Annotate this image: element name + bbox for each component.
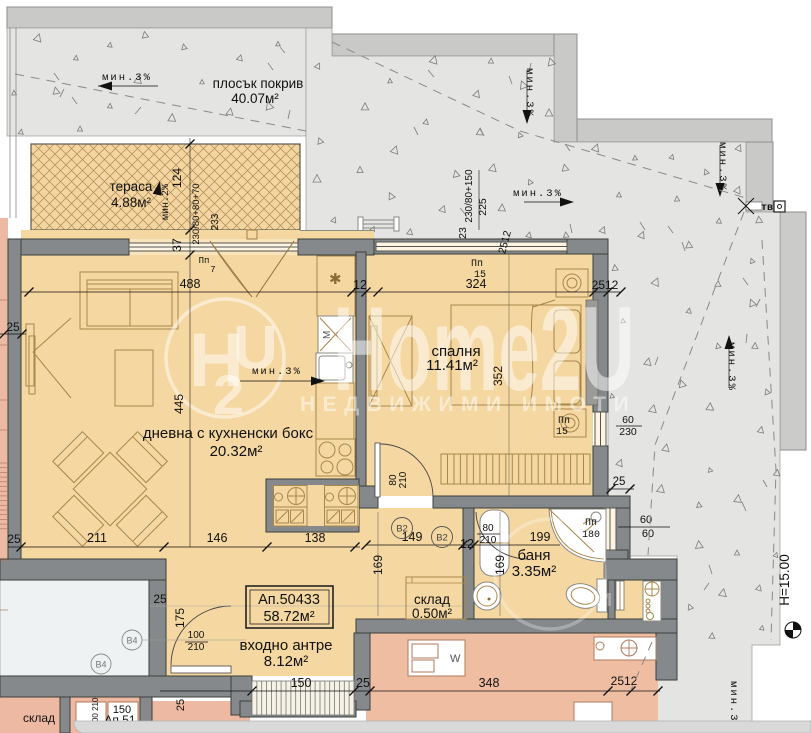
svg-text:210: 210 xyxy=(480,535,497,546)
svg-text:мин.3%: мин.3% xyxy=(725,342,737,392)
svg-text:169: 169 xyxy=(371,555,385,575)
svg-text:входно антре: входно антре xyxy=(239,637,332,654)
svg-text:Н=15.00: Н=15.00 xyxy=(777,554,792,605)
svg-text:2: 2 xyxy=(213,363,244,426)
svg-text:124: 124 xyxy=(170,168,184,188)
svg-text:2512: 2512 xyxy=(611,674,638,688)
svg-text:352: 352 xyxy=(491,366,505,386)
svg-text:11.41м²: 11.41м² xyxy=(426,357,478,374)
svg-text:B2: B2 xyxy=(436,533,448,544)
svg-text:Пп: Пп xyxy=(199,256,210,266)
svg-text:Пп: Пп xyxy=(558,416,570,427)
svg-text:склад: склад xyxy=(23,711,55,725)
svg-text:58.72м²: 58.72м² xyxy=(263,609,314,625)
svg-text:W: W xyxy=(450,653,461,665)
svg-text:225: 225 xyxy=(477,198,489,216)
svg-text:тераса: тераса xyxy=(110,179,153,194)
svg-text:плосък покрив: плосък покрив xyxy=(213,76,304,91)
svg-text:3.35м²: 3.35м² xyxy=(512,563,557,580)
svg-text:ти: ти xyxy=(586,585,613,612)
svg-text:M: M xyxy=(322,331,333,339)
svg-text:25: 25 xyxy=(356,676,370,690)
svg-text:2512: 2512 xyxy=(592,278,619,292)
svg-text:138: 138 xyxy=(305,531,326,545)
svg-text:211: 211 xyxy=(87,531,107,545)
svg-text:мин.3%: мин.3% xyxy=(513,188,563,200)
svg-text:25: 25 xyxy=(7,532,21,546)
svg-text:60: 60 xyxy=(622,414,634,426)
svg-text:233: 233 xyxy=(210,213,221,230)
svg-text:склад: склад xyxy=(414,592,450,607)
svg-text:25: 25 xyxy=(153,592,167,606)
svg-text:дневна с кухненски бокс: дневна с кухненски бокс xyxy=(143,425,314,442)
svg-text:180: 180 xyxy=(582,530,600,541)
svg-text:230/80+150: 230/80+150 xyxy=(464,169,475,223)
svg-text:7: 7 xyxy=(210,265,215,275)
svg-text:B4: B4 xyxy=(95,660,106,670)
svg-text:тв: тв xyxy=(761,203,773,214)
svg-text:мин.3%: мин.3% xyxy=(102,72,152,84)
svg-text:348: 348 xyxy=(479,676,500,690)
svg-text:146: 146 xyxy=(207,531,228,545)
svg-text:445: 445 xyxy=(172,394,186,414)
svg-text:0.50м²: 0.50м² xyxy=(412,606,453,621)
svg-text:25: 25 xyxy=(175,699,187,711)
svg-text:40.07м²: 40.07м² xyxy=(231,91,279,106)
svg-text:230: 230 xyxy=(619,426,637,438)
svg-text:мин.3%: мин.3% xyxy=(252,366,302,378)
svg-text:210: 210 xyxy=(188,642,205,653)
svg-text:Пп: Пп xyxy=(585,518,597,529)
svg-text:НЕДВИЖИМИ ИМОТИ: НЕДВИЖИМИ ИМОТИ xyxy=(300,393,636,416)
svg-text:4.88м²: 4.88м² xyxy=(111,195,152,210)
svg-text:169: 169 xyxy=(493,555,507,575)
svg-text:Ап.50433: Ап.50433 xyxy=(258,592,320,608)
svg-text:37: 37 xyxy=(170,238,184,252)
svg-text:23: 23 xyxy=(457,227,469,239)
svg-text:80: 80 xyxy=(482,523,494,534)
svg-text:150: 150 xyxy=(291,676,312,690)
svg-text:25: 25 xyxy=(6,320,20,334)
svg-text:мин.2%: мин.2% xyxy=(161,184,172,220)
svg-text:8.12м²: 8.12м² xyxy=(264,653,309,670)
svg-text:199: 199 xyxy=(530,530,551,544)
svg-text:150: 150 xyxy=(113,704,131,716)
svg-text:20.32м²: 20.32м² xyxy=(210,443,263,460)
svg-text:230/80+80+70: 230/80+80+70 xyxy=(191,183,202,244)
svg-text:15: 15 xyxy=(556,427,568,438)
svg-text:12: 12 xyxy=(460,537,474,551)
svg-text:15: 15 xyxy=(474,270,486,281)
svg-text:Пп: Пп xyxy=(471,259,483,270)
svg-text:баня: баня xyxy=(518,547,551,564)
svg-text:100: 100 xyxy=(188,630,205,641)
svg-text:B4: B4 xyxy=(126,636,137,646)
svg-text:60: 60 xyxy=(642,528,654,540)
svg-text:12: 12 xyxy=(353,278,367,292)
svg-text:B2: B2 xyxy=(396,524,408,535)
svg-text:210: 210 xyxy=(398,471,409,488)
svg-text:175: 175 xyxy=(173,608,187,628)
